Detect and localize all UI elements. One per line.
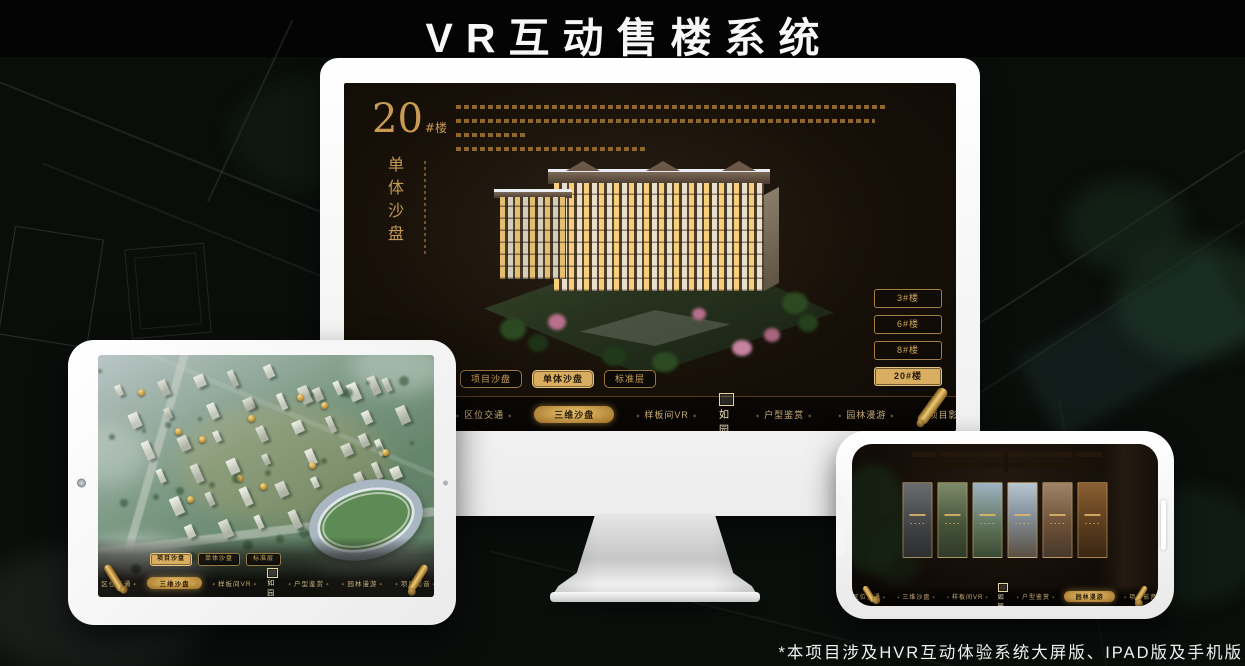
monitor-stand-base xyxy=(550,592,760,602)
aerial-tree xyxy=(343,388,353,398)
block-title: 20#楼 单体沙盘 xyxy=(372,99,447,266)
aerial-tree xyxy=(254,405,258,409)
floor-button-20[interactable]: 20#楼 xyxy=(874,367,942,386)
aerial-building xyxy=(253,514,264,529)
residential-building xyxy=(554,169,764,291)
mode-tabs: 项目沙盘 单体沙盘 标准层 xyxy=(460,370,656,388)
building-number-badge[interactable] xyxy=(199,436,206,443)
building-number-badge[interactable] xyxy=(175,428,182,435)
lit-facade xyxy=(500,197,566,279)
lit-facade xyxy=(554,183,764,291)
aerial-building xyxy=(310,476,320,488)
tablet-button[interactable] xyxy=(443,480,448,485)
aerial-building xyxy=(276,393,288,411)
footnote: *本项目涉及HVR互动体验系统大屏版、IPAD版及手机版 xyxy=(778,639,1243,663)
tree-blob xyxy=(1065,180,1185,270)
aerial-tree xyxy=(209,482,215,488)
background-frame xyxy=(0,226,104,349)
scene-panel[interactable] xyxy=(938,482,968,558)
aerial-tree xyxy=(410,441,414,445)
pergola-post xyxy=(936,452,940,472)
aerial-building xyxy=(371,462,383,480)
nav-item-showroom-vr[interactable]: 样板间VR xyxy=(632,408,701,421)
ruyuan-logo[interactable]: 如园 xyxy=(998,583,1008,607)
seal-icon xyxy=(719,393,734,406)
aerial-building xyxy=(361,410,374,425)
blossom-tree xyxy=(732,340,752,356)
aerial-building xyxy=(238,486,253,507)
tab-project-sandbox[interactable]: 项目沙盘 xyxy=(150,553,192,566)
background-plaque xyxy=(124,243,212,340)
nav-item-3d-sandbox[interactable]: 三维沙盘 xyxy=(534,406,614,423)
scene-panel[interactable] xyxy=(903,482,933,558)
tablet-camera xyxy=(77,478,86,487)
aerial-tree xyxy=(377,446,383,452)
floor-button-6[interactable]: 6#楼 xyxy=(874,315,942,334)
aerial-building xyxy=(358,433,371,448)
aerial-building xyxy=(381,377,392,392)
aerial-building xyxy=(157,379,171,397)
aerial-tree xyxy=(198,417,202,421)
tree xyxy=(602,346,626,366)
block-number-suffix: #楼 xyxy=(425,121,447,135)
seal-icon xyxy=(267,568,278,578)
building-number-badge[interactable] xyxy=(260,483,267,490)
aerial-building xyxy=(206,402,220,420)
phone-side-button xyxy=(1161,500,1166,550)
aerial-tree xyxy=(265,470,271,476)
monitor-shadow xyxy=(538,601,772,615)
block-subtitle: 单体沙盘 xyxy=(382,156,406,266)
wood-panel xyxy=(1100,444,1158,606)
floor-buttons: 3#楼 6#楼 8#楼 20#楼 xyxy=(874,289,942,386)
text-line xyxy=(456,133,525,137)
blossom-tree xyxy=(548,314,566,330)
tablet-navbar: 区位交通 三维沙盘 样板间VR 如园 户型鉴赏 园林漫游 项目影音 xyxy=(98,572,434,594)
aerial-building xyxy=(261,453,271,465)
nav-item-3d-sandbox[interactable]: 三维沙盘 xyxy=(147,577,202,589)
tab-single-sandbox[interactable]: 单体沙盘 xyxy=(198,553,240,566)
stage: VR互动售楼系统 20#楼 单体沙盘 xyxy=(0,0,1245,666)
roof-gable xyxy=(722,161,756,171)
tab-project-sandbox[interactable]: 项目沙盘 xyxy=(460,370,522,388)
nav-item-showroom-vr[interactable]: 样板间VR xyxy=(945,592,991,601)
aerial-building xyxy=(114,384,124,396)
aerial-building xyxy=(140,440,155,461)
aerial-building xyxy=(395,405,411,426)
nav-item-garden-tour[interactable]: 园林漫游 xyxy=(340,578,385,588)
aerial-building xyxy=(287,509,302,530)
aerial-tree xyxy=(399,376,409,386)
pergola-post xyxy=(1004,452,1008,472)
ruyuan-logo[interactable]: 如园 xyxy=(719,393,734,432)
aerial-building xyxy=(340,442,354,457)
building-number-badge[interactable] xyxy=(248,415,255,422)
aerial-tree xyxy=(98,369,102,373)
ruyuan-logo[interactable]: 如园 xyxy=(267,568,278,597)
tree xyxy=(528,334,548,352)
aerial-building xyxy=(163,407,173,419)
scene-panel[interactable] xyxy=(973,482,1003,558)
aerial-building xyxy=(389,465,403,480)
tree xyxy=(500,318,526,340)
aerial-building xyxy=(176,435,191,453)
aerial-tree xyxy=(165,422,171,428)
aerial-building xyxy=(155,468,166,483)
scene-panel[interactable] xyxy=(1043,482,1073,558)
phone-navbar: 区位交通 三维沙盘 样板间VR 如园 户型鉴赏 园林漫游 项目影音 xyxy=(852,586,1158,606)
tab-standard-floor[interactable]: 标准层 xyxy=(246,553,281,566)
floor-button-3[interactable]: 3#楼 xyxy=(874,289,942,308)
tablet-nav-overlay: 项目沙盘 单体沙盘 标准层 区位交通 三维沙盘 样板间VR 如园 户型鉴赏 园林… xyxy=(98,537,434,597)
aerial-building xyxy=(212,430,222,442)
floor-button-8[interactable]: 8#楼 xyxy=(874,341,942,360)
blossom-tree xyxy=(764,328,780,342)
aerial-tree xyxy=(109,434,115,440)
building-number-badge[interactable] xyxy=(321,402,328,409)
blossom-tree xyxy=(692,308,706,320)
logo-text: 如园 xyxy=(998,592,1008,607)
aerial-building xyxy=(227,370,239,388)
aerial-building xyxy=(127,412,142,430)
building-number-badge[interactable] xyxy=(382,449,389,456)
aerial-tree xyxy=(120,499,128,507)
building-side xyxy=(764,187,779,291)
aerial-building xyxy=(169,496,185,517)
tree xyxy=(652,352,678,372)
phone-screen: 区位交通 三维沙盘 样板间VR 如园 户型鉴赏 园林漫游 项目影音 xyxy=(852,444,1158,606)
building-wing xyxy=(500,189,566,279)
aerial-building xyxy=(325,416,337,434)
aerial-building xyxy=(332,380,343,395)
tab-standard-floor[interactable]: 标准层 xyxy=(604,370,656,388)
tree xyxy=(798,314,818,332)
aerial-building xyxy=(204,491,215,506)
scene-panel[interactable] xyxy=(1008,482,1038,558)
aerial-building xyxy=(291,419,305,434)
building-number-badge[interactable] xyxy=(138,389,145,396)
nav-item-showroom-vr[interactable]: 样板间VR xyxy=(210,578,259,588)
roof-gable xyxy=(566,161,600,171)
logo-text: 如园 xyxy=(719,406,734,432)
aerial-tree xyxy=(366,381,370,385)
aerial-building xyxy=(255,425,269,443)
aerial-tree xyxy=(232,475,240,483)
block-number: 20#楼 xyxy=(372,99,447,148)
pergola-post xyxy=(1072,452,1076,472)
aerial-tree xyxy=(310,393,314,397)
building-roof xyxy=(548,169,770,184)
phone-device: 区位交通 三维沙盘 样板间VR 如园 户型鉴赏 园林漫游 项目影音 xyxy=(836,431,1174,619)
nav-item-location[interactable]: 区位交通 xyxy=(452,408,516,421)
building-number-badge[interactable] xyxy=(309,462,316,469)
text-line xyxy=(456,105,888,109)
scene-panel[interactable] xyxy=(1078,482,1108,558)
seal-icon xyxy=(998,583,1008,592)
text-line xyxy=(456,119,875,123)
tree xyxy=(782,292,808,314)
aerial-building xyxy=(263,364,276,379)
building-3d-render[interactable] xyxy=(484,145,834,380)
aerial-building xyxy=(366,375,381,396)
nav-item-floorplans[interactable]: 户型鉴赏 xyxy=(286,578,331,588)
monitor-stand xyxy=(552,514,758,596)
subtitle-ornament xyxy=(424,161,426,257)
nav-item-garden-tour[interactable]: 园林漫游 xyxy=(834,408,898,421)
aerial-building xyxy=(225,458,240,476)
aerial-tree xyxy=(153,494,159,500)
aerial-building xyxy=(189,463,204,484)
aerial-tree xyxy=(176,487,184,495)
nav-item-garden-tour[interactable]: 园林漫游 xyxy=(1064,591,1115,602)
aerial-tree xyxy=(142,429,146,433)
building-number-badge[interactable] xyxy=(297,394,304,401)
tablet-screen: 项目沙盘 单体沙盘 标准层 区位交通 三维沙盘 样板间VR 如园 户型鉴赏 园林… xyxy=(98,355,434,597)
tablet-device: 项目沙盘 单体沙盘 标准层 区位交通 三维沙盘 样板间VR 如园 户型鉴赏 园林… xyxy=(68,340,456,625)
phone-notch xyxy=(836,493,845,557)
nav-item-floorplans[interactable]: 户型鉴赏 xyxy=(1015,592,1058,601)
building-number-badge[interactable] xyxy=(187,496,194,503)
nav-item-3d-sandbox[interactable]: 三维沙盘 xyxy=(895,592,938,601)
page-title: VR互动售楼系统 xyxy=(0,4,1245,64)
scene-panels xyxy=(903,482,1108,558)
nav-item-floorplans[interactable]: 户型鉴赏 xyxy=(752,408,816,421)
aerial-tree xyxy=(321,458,327,464)
aerial-building xyxy=(242,396,256,411)
roof-gable xyxy=(646,161,680,171)
tab-single-sandbox[interactable]: 单体沙盘 xyxy=(532,370,594,388)
aerial-building xyxy=(193,373,207,388)
tablet-mode-tabs: 项目沙盘 单体沙盘 标准层 xyxy=(150,553,281,566)
aerial-building xyxy=(274,481,289,499)
logo-text: 如园 xyxy=(267,578,278,597)
